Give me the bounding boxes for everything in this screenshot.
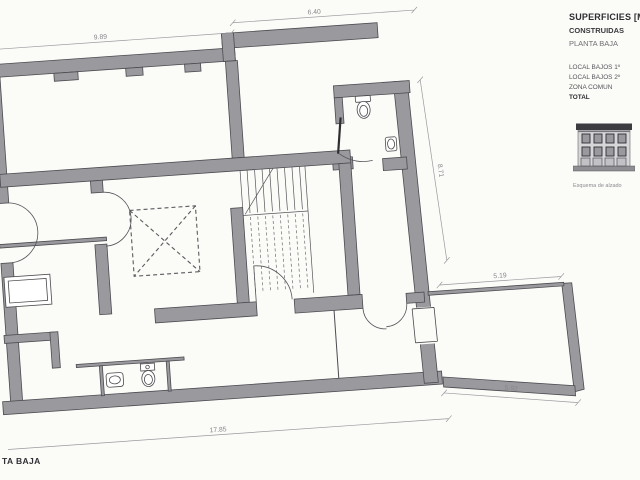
dim-top-right: 6.40 [307, 9, 321, 17]
double-door-left [8, 201, 40, 263]
panel-title: SUPERFICIES [M [569, 12, 640, 22]
dim-bottom: 17.85 [209, 426, 227, 434]
panel-plan-name: PLANTA BAJA [569, 39, 640, 48]
floor-plan-page: 9.89 6.40 8.71 5.19 5.92 17.85 SUPERFICI… [0, 0, 640, 480]
courtyard-right-wall [562, 282, 585, 392]
sink-bottom [106, 372, 124, 387]
toilet-top [355, 95, 372, 118]
double-door-mid [102, 190, 133, 246]
partition-v3 [225, 61, 244, 159]
dim-courtyard-top: 5.19 [493, 272, 507, 280]
surface-item-zona-comun: ZONA COMUN [569, 83, 640, 93]
staircase [240, 166, 314, 297]
plan-title: TA BAJA [2, 456, 41, 466]
sink-top [385, 137, 397, 152]
right-wall-opening [411, 306, 438, 345]
dim-courtyard-bottom: 5.92 [504, 385, 518, 393]
dim-right: 8.71 [436, 164, 445, 178]
surface-items: LOCAL BAJOS 1º LOCAL BAJOS 2º ZONA COMUN… [569, 63, 640, 103]
elevation-caption: Esquema de alzado [573, 183, 637, 189]
surface-item-total: TOTAL [569, 93, 640, 103]
panel-subtitle: CONSTRUIDAS [569, 26, 640, 35]
patio-shaft [130, 206, 200, 276]
counter-unit [4, 274, 52, 307]
elevation-sketch: Esquema de alzado [573, 120, 637, 189]
row1-wall [0, 150, 351, 187]
toilet-bottom [140, 363, 156, 387]
elevation-facade-icon [573, 120, 635, 173]
row2-wall-b [294, 294, 363, 313]
double-door-row2 [363, 303, 409, 330]
bottom-room-partition [334, 310, 339, 378]
bottom-wall [3, 371, 443, 415]
row2-wall-c [406, 292, 425, 303]
dim-top-left: 9.89 [94, 34, 108, 42]
upper-band-wall [221, 23, 378, 49]
interior-walls [0, 39, 569, 402]
facade-wall [0, 48, 235, 78]
stair-door [254, 263, 292, 301]
floor-plan-drawing: 9.89 6.40 8.71 5.19 5.92 17.85 [0, 0, 640, 480]
surface-item-local-2: LOCAL BAJOS 2º [569, 73, 640, 83]
partition-v2 [95, 244, 112, 315]
legend-panel: SUPERFICIES [M CONSTRUIDAS PLANTA BAJA L… [569, 12, 640, 103]
thin-wall-left [0, 237, 107, 248]
surface-item-local-1: LOCAL BAJOS 1º [569, 63, 640, 73]
corridor-wall [339, 163, 360, 296]
exterior-walls [0, 10, 585, 436]
stair-side-wall [231, 208, 250, 304]
row2-wall-a [155, 302, 258, 323]
